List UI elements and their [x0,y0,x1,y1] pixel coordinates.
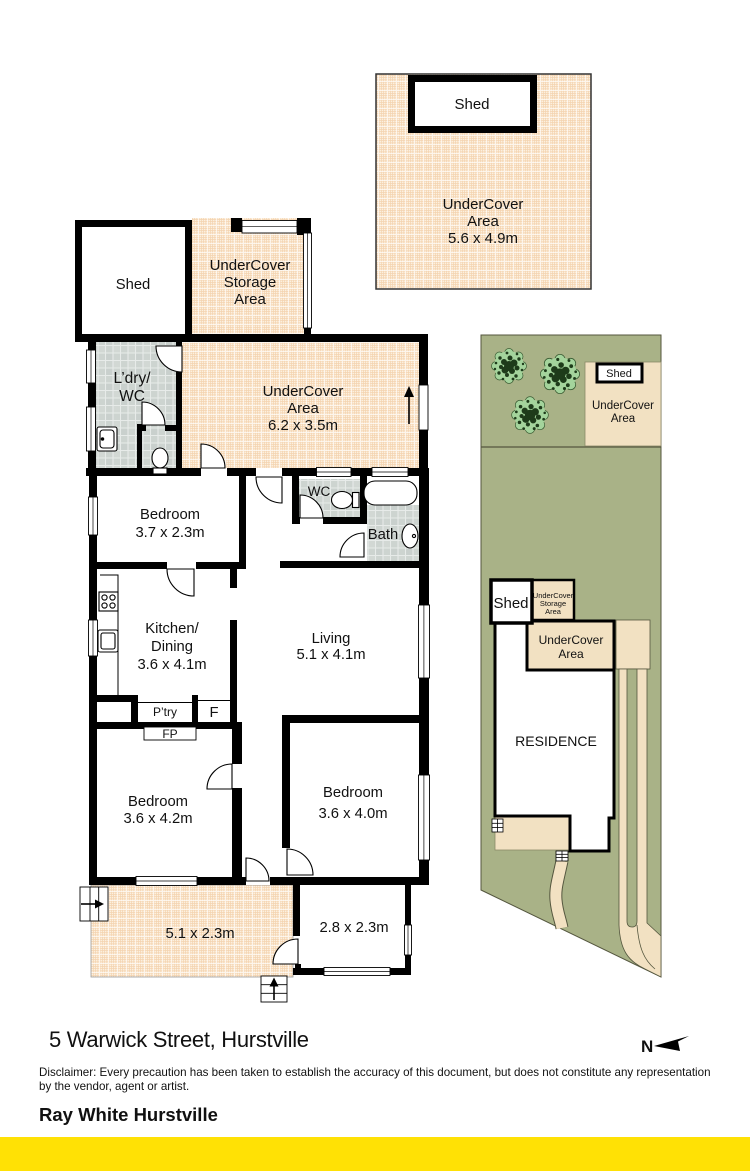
svg-text:WC: WC [119,388,145,405]
svg-text:3.6 x 4.0m: 3.6 x 4.0m [318,806,387,822]
svg-text:Area: Area [611,413,636,425]
svg-text:6.2 x 3.5m: 6.2 x 3.5m [268,417,338,434]
svg-text:5.1 x 4.1m: 5.1 x 4.1m [296,647,365,663]
svg-text:Bedroom: Bedroom [128,794,188,810]
svg-text:UnderCover: UnderCover [539,633,604,647]
svg-text:Bedroom: Bedroom [140,507,200,523]
svg-text:F: F [209,705,218,721]
svg-text:Shed: Shed [606,368,632,380]
svg-text:UnderCover: UnderCover [443,196,524,213]
svg-text:Bedroom: Bedroom [323,785,383,801]
svg-text:Shed: Shed [454,96,489,113]
svg-text:Disclaimer: Every precaution h: Disclaimer: Every precaution has been ta… [39,1066,711,1079]
svg-text:Shed: Shed [116,277,151,293]
svg-text:2.8 x 2.3m: 2.8 x 2.3m [319,920,388,936]
svg-text:UnderCover: UnderCover [263,383,344,400]
svg-text:N: N [641,1037,653,1056]
svg-text:Kitchen/: Kitchen/ [145,621,199,637]
svg-text:L’dry/: L’dry/ [113,370,151,387]
svg-text:Dining: Dining [151,639,193,655]
svg-text:Area: Area [287,400,319,417]
svg-text:FP: FP [162,727,177,741]
svg-text:WC: WC [308,484,331,499]
svg-text:P’try: P’try [153,705,177,719]
svg-text:RESIDENCE: RESIDENCE [515,733,597,749]
svg-text:3.7 x 2.3m: 3.7 x 2.3m [135,525,204,541]
svg-text:Shed: Shed [493,595,528,612]
svg-text:Living: Living [312,631,351,647]
svg-text:5.6 x 4.9m: 5.6 x 4.9m [448,230,518,247]
svg-text:Area: Area [545,607,562,616]
svg-text:UnderCover: UnderCover [210,257,291,274]
svg-text:Area: Area [467,213,499,230]
svg-text:5.1 x 2.3m: 5.1 x 2.3m [165,926,234,942]
svg-text:Ray White Hurstville: Ray White Hurstville [39,1104,218,1125]
svg-text:3.6 x 4.1m: 3.6 x 4.1m [137,657,206,673]
svg-text:UnderCover: UnderCover [592,400,654,412]
svg-text:Area: Area [558,647,584,661]
svg-text:by the vendor, agent or artist: by the vendor, agent or artist. [39,1080,189,1093]
svg-text:Area: Area [234,291,266,308]
svg-text:3.6 x 4.2m: 3.6 x 4.2m [123,811,192,827]
svg-text:5 Warwick Street, Hurstville: 5 Warwick Street, Hurstville [49,1027,309,1052]
svg-text:Storage: Storage [224,274,277,291]
svg-text:Bath: Bath [368,527,398,543]
